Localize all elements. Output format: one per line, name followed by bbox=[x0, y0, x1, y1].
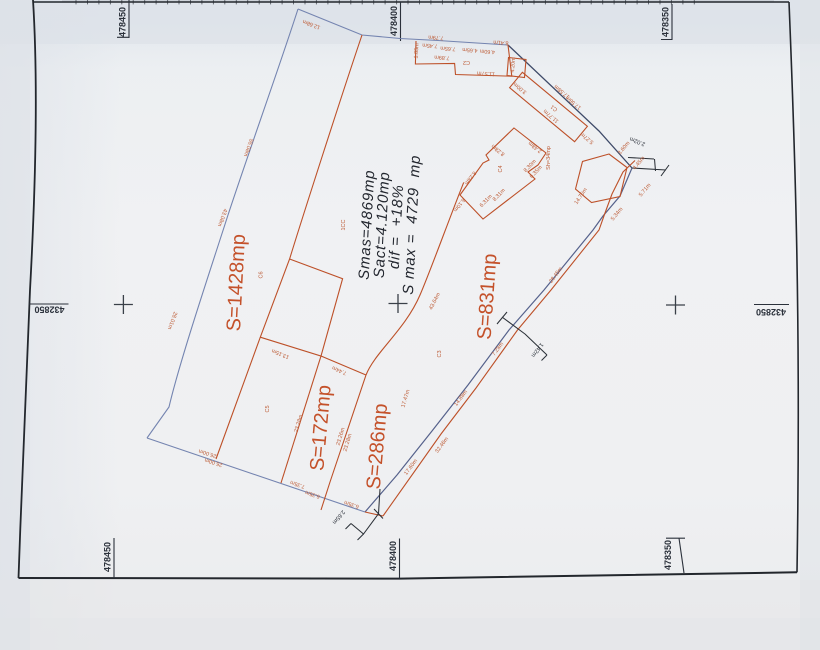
svg-text:C2: C2 bbox=[463, 59, 470, 65]
svg-text:432850: 432850 bbox=[34, 305, 64, 315]
svg-text:C4: C4 bbox=[498, 165, 504, 172]
svg-text:Sh=34mp: Sh=34mp bbox=[546, 146, 552, 170]
svg-text:4.60m: 4.60m bbox=[479, 47, 495, 54]
svg-text:478350: 478350 bbox=[661, 7, 671, 37]
svg-text:11.57m: 11.57m bbox=[476, 69, 495, 76]
svg-text:7.65m: 7.65m bbox=[440, 44, 456, 51]
svg-text:4.65m: 4.65m bbox=[462, 46, 478, 53]
svg-text:C6: C6 bbox=[259, 271, 265, 278]
svg-text:7.79m: 7.79m bbox=[428, 33, 444, 40]
svg-text:7.45m: 7.45m bbox=[422, 41, 438, 48]
svg-text:478450: 478450 bbox=[118, 7, 128, 37]
svg-text:478400: 478400 bbox=[388, 541, 398, 571]
svg-text:4.20m: 4.20m bbox=[510, 57, 517, 73]
svg-text:478350: 478350 bbox=[663, 540, 673, 570]
svg-text:1.85m: 1.85m bbox=[413, 43, 420, 59]
svg-text:7.89m: 7.89m bbox=[434, 53, 450, 60]
svg-text:C5: C5 bbox=[265, 405, 271, 412]
svg-text:432850: 432850 bbox=[756, 307, 786, 317]
svg-text:1CC: 1CC bbox=[341, 219, 347, 230]
svg-text:478400: 478400 bbox=[389, 6, 399, 36]
svg-text:C3: C3 bbox=[437, 350, 443, 357]
svg-text:8.41m: 8.41m bbox=[493, 38, 509, 45]
svg-text:478450: 478450 bbox=[103, 542, 113, 572]
